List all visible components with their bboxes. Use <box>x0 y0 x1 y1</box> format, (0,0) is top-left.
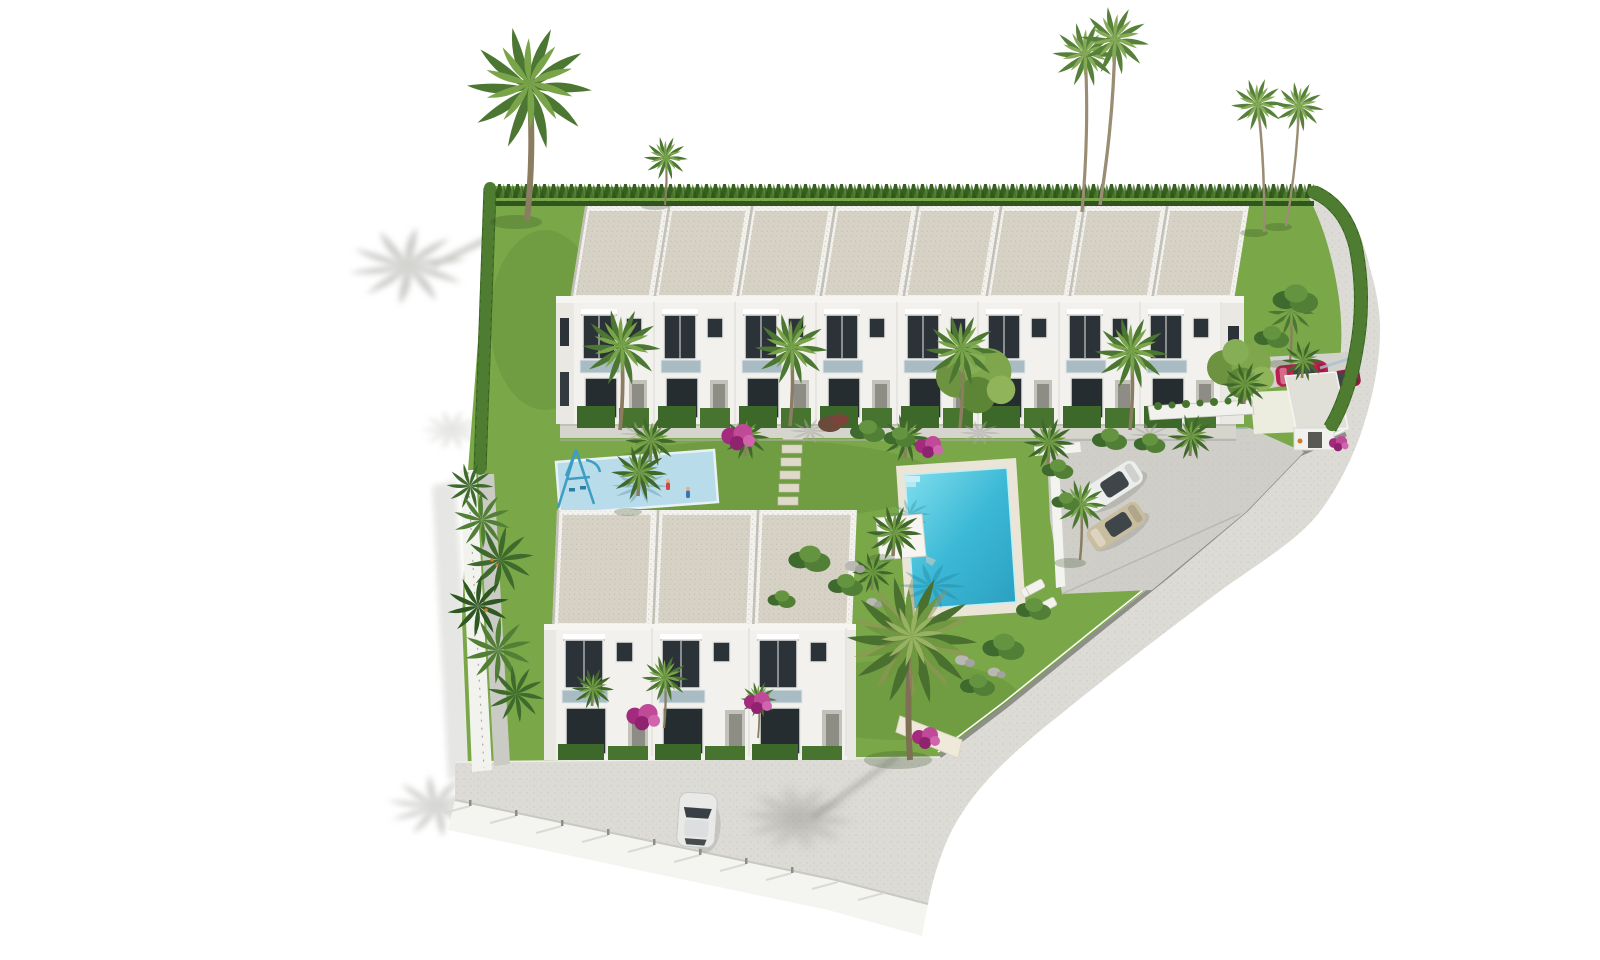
person-figure <box>1298 439 1303 444</box>
end-window <box>560 318 569 346</box>
child-figure <box>686 487 690 498</box>
parapet-band <box>544 624 856 630</box>
east-end-wall <box>847 630 856 760</box>
north-hedge-base <box>494 201 1314 206</box>
pool-steps <box>906 476 920 482</box>
child-figure <box>666 479 670 490</box>
west-end-wall <box>544 630 556 760</box>
north-townhouse-row <box>556 206 1249 428</box>
swing-seat <box>569 488 575 492</box>
end-window <box>560 372 569 406</box>
road-hatchback <box>676 792 723 854</box>
gate-doorway <box>1308 432 1322 448</box>
parapet-band <box>556 296 1244 303</box>
render-canvas <box>0 0 1600 960</box>
site-plan-render <box>0 0 1600 960</box>
pool-steps <box>906 482 916 487</box>
swing-seat <box>580 486 586 490</box>
north-roofs <box>570 206 1249 300</box>
